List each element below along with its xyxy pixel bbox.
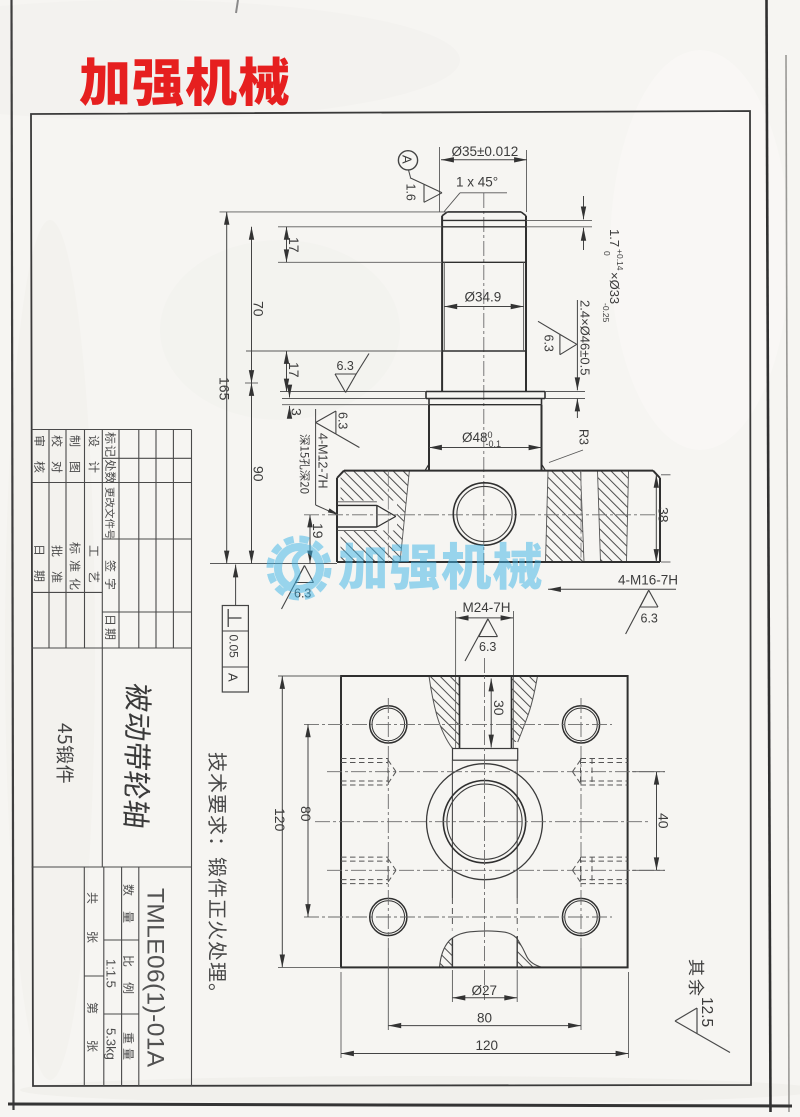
svg-text:1 x 45°: 1 x 45° <box>456 175 498 190</box>
svg-text:-0.25: -0.25 <box>601 303 611 323</box>
svg-text:1:1.5: 1:1.5 <box>104 959 119 988</box>
svg-text:6.3: 6.3 <box>336 412 350 429</box>
svg-text:A: A <box>400 155 415 164</box>
svg-text:Ø35±0.012: Ø35±0.012 <box>452 144 519 159</box>
svg-text:30: 30 <box>491 700 507 716</box>
svg-text:5.3kg: 5.3kg <box>104 1028 119 1060</box>
svg-text:40: 40 <box>656 813 672 829</box>
svg-text:0.05: 0.05 <box>227 635 241 659</box>
svg-text:12.5: 12.5 <box>698 997 715 1027</box>
svg-text:2.4×Ø46±0.5: 2.4×Ø46±0.5 <box>578 300 593 375</box>
svg-text:6.3: 6.3 <box>337 359 354 373</box>
svg-text:120: 120 <box>476 1038 499 1053</box>
svg-text:Ø27: Ø27 <box>472 983 498 998</box>
svg-text:1.7: 1.7 <box>607 229 622 247</box>
svg-text:17: 17 <box>286 237 302 253</box>
svg-text:3: 3 <box>289 408 305 416</box>
svg-text:Ø34.9: Ø34.9 <box>465 290 502 305</box>
svg-text:R3: R3 <box>577 429 591 445</box>
svg-text:165: 165 <box>217 377 233 401</box>
svg-text:M24-7H: M24-7H <box>463 600 511 615</box>
svg-text:38: 38 <box>656 507 672 523</box>
svg-text:4-M16-7H: 4-M16-7H <box>618 573 678 588</box>
svg-text:TMLE06(1)-01A: TMLE06(1)-01A <box>142 888 169 1068</box>
svg-text:A: A <box>226 673 241 682</box>
svg-text:6.3: 6.3 <box>479 640 496 654</box>
svg-text:+0.14: +0.14 <box>615 249 625 271</box>
svg-text:17: 17 <box>286 362 302 378</box>
svg-text:0: 0 <box>602 251 612 256</box>
svg-text:6.3: 6.3 <box>542 335 556 352</box>
svg-text:90: 90 <box>251 466 267 482</box>
svg-text:1.6: 1.6 <box>404 184 418 201</box>
svg-text:80: 80 <box>477 1011 492 1026</box>
svg-text:19: 19 <box>310 523 326 539</box>
svg-text:70: 70 <box>251 301 267 317</box>
svg-text:120: 120 <box>272 808 288 832</box>
svg-text:4-M12-7H: 4-M12-7H <box>316 433 330 489</box>
svg-text:6.3: 6.3 <box>641 612 658 626</box>
svg-text:80: 80 <box>298 806 314 822</box>
svg-text:×Ø33: ×Ø33 <box>607 272 622 304</box>
